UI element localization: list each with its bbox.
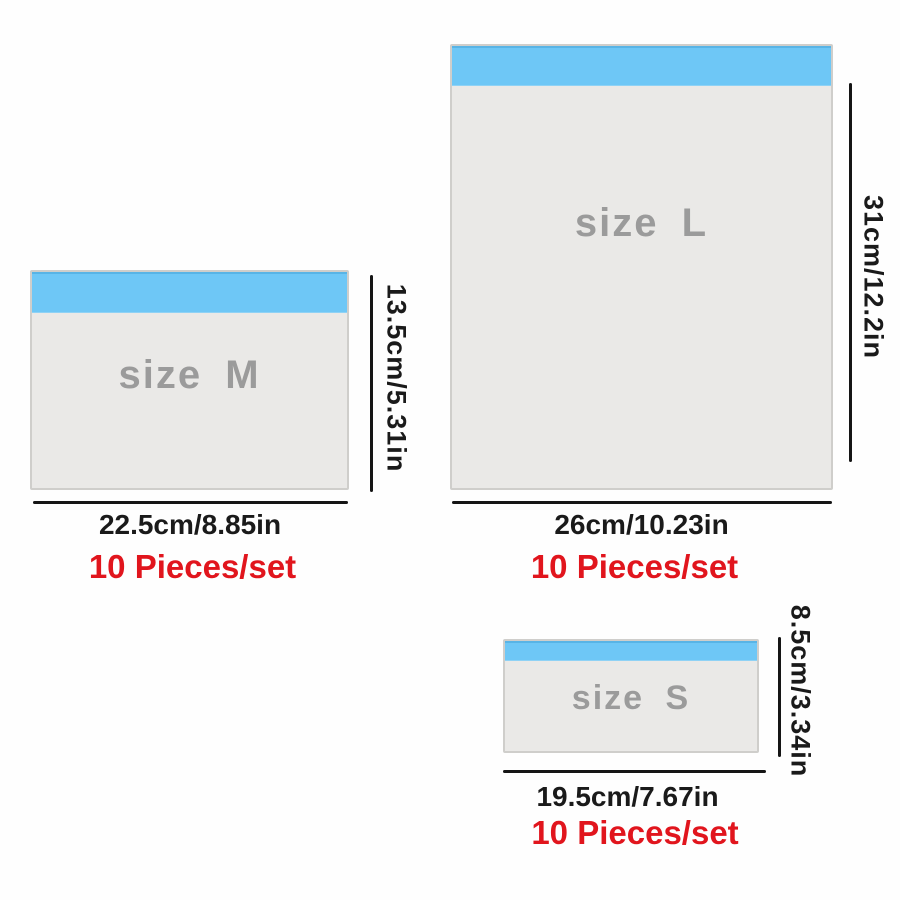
bag-m-pieces-label: 10 Pieces/set [25,549,360,585]
bag-l [450,44,833,490]
bag-s-size-label: size S [503,680,759,716]
bag-m-height-label: 13.5cm/5.31in [381,284,412,473]
bag-l-height-label: 31cm/12.2in [858,195,889,359]
bag-l-seal-strip [452,46,831,86]
bag-l-pieces-label: 10 Pieces/set [443,549,826,585]
bag-s-height-label: 8.5cm/3.34in [785,605,816,778]
product-size-diagram: size M 22.5cm/8.85in 13.5cm/5.31in 10 Pi… [0,0,900,900]
bag-m-height-line [370,275,373,492]
bag-s-width-line [503,770,766,773]
bag-s-pieces-label: 10 Pieces/set [490,815,780,851]
bag-m-size-label: size M [30,354,349,396]
bag-m-width-label: 22.5cm/8.85in [25,509,355,541]
bag-s-height-line [778,637,781,757]
bag-m-width-line [33,501,348,504]
bag-m-seal-strip [32,272,347,313]
bag-s-seal-strip [505,641,757,661]
bag-l-width-label: 26cm/10.23in [450,509,833,541]
bag-s-width-label: 19.5cm/7.67in [495,781,760,813]
bag-l-height-line [849,83,852,462]
bag-l-width-line [452,501,832,504]
bag-l-size-label: size L [450,202,833,244]
